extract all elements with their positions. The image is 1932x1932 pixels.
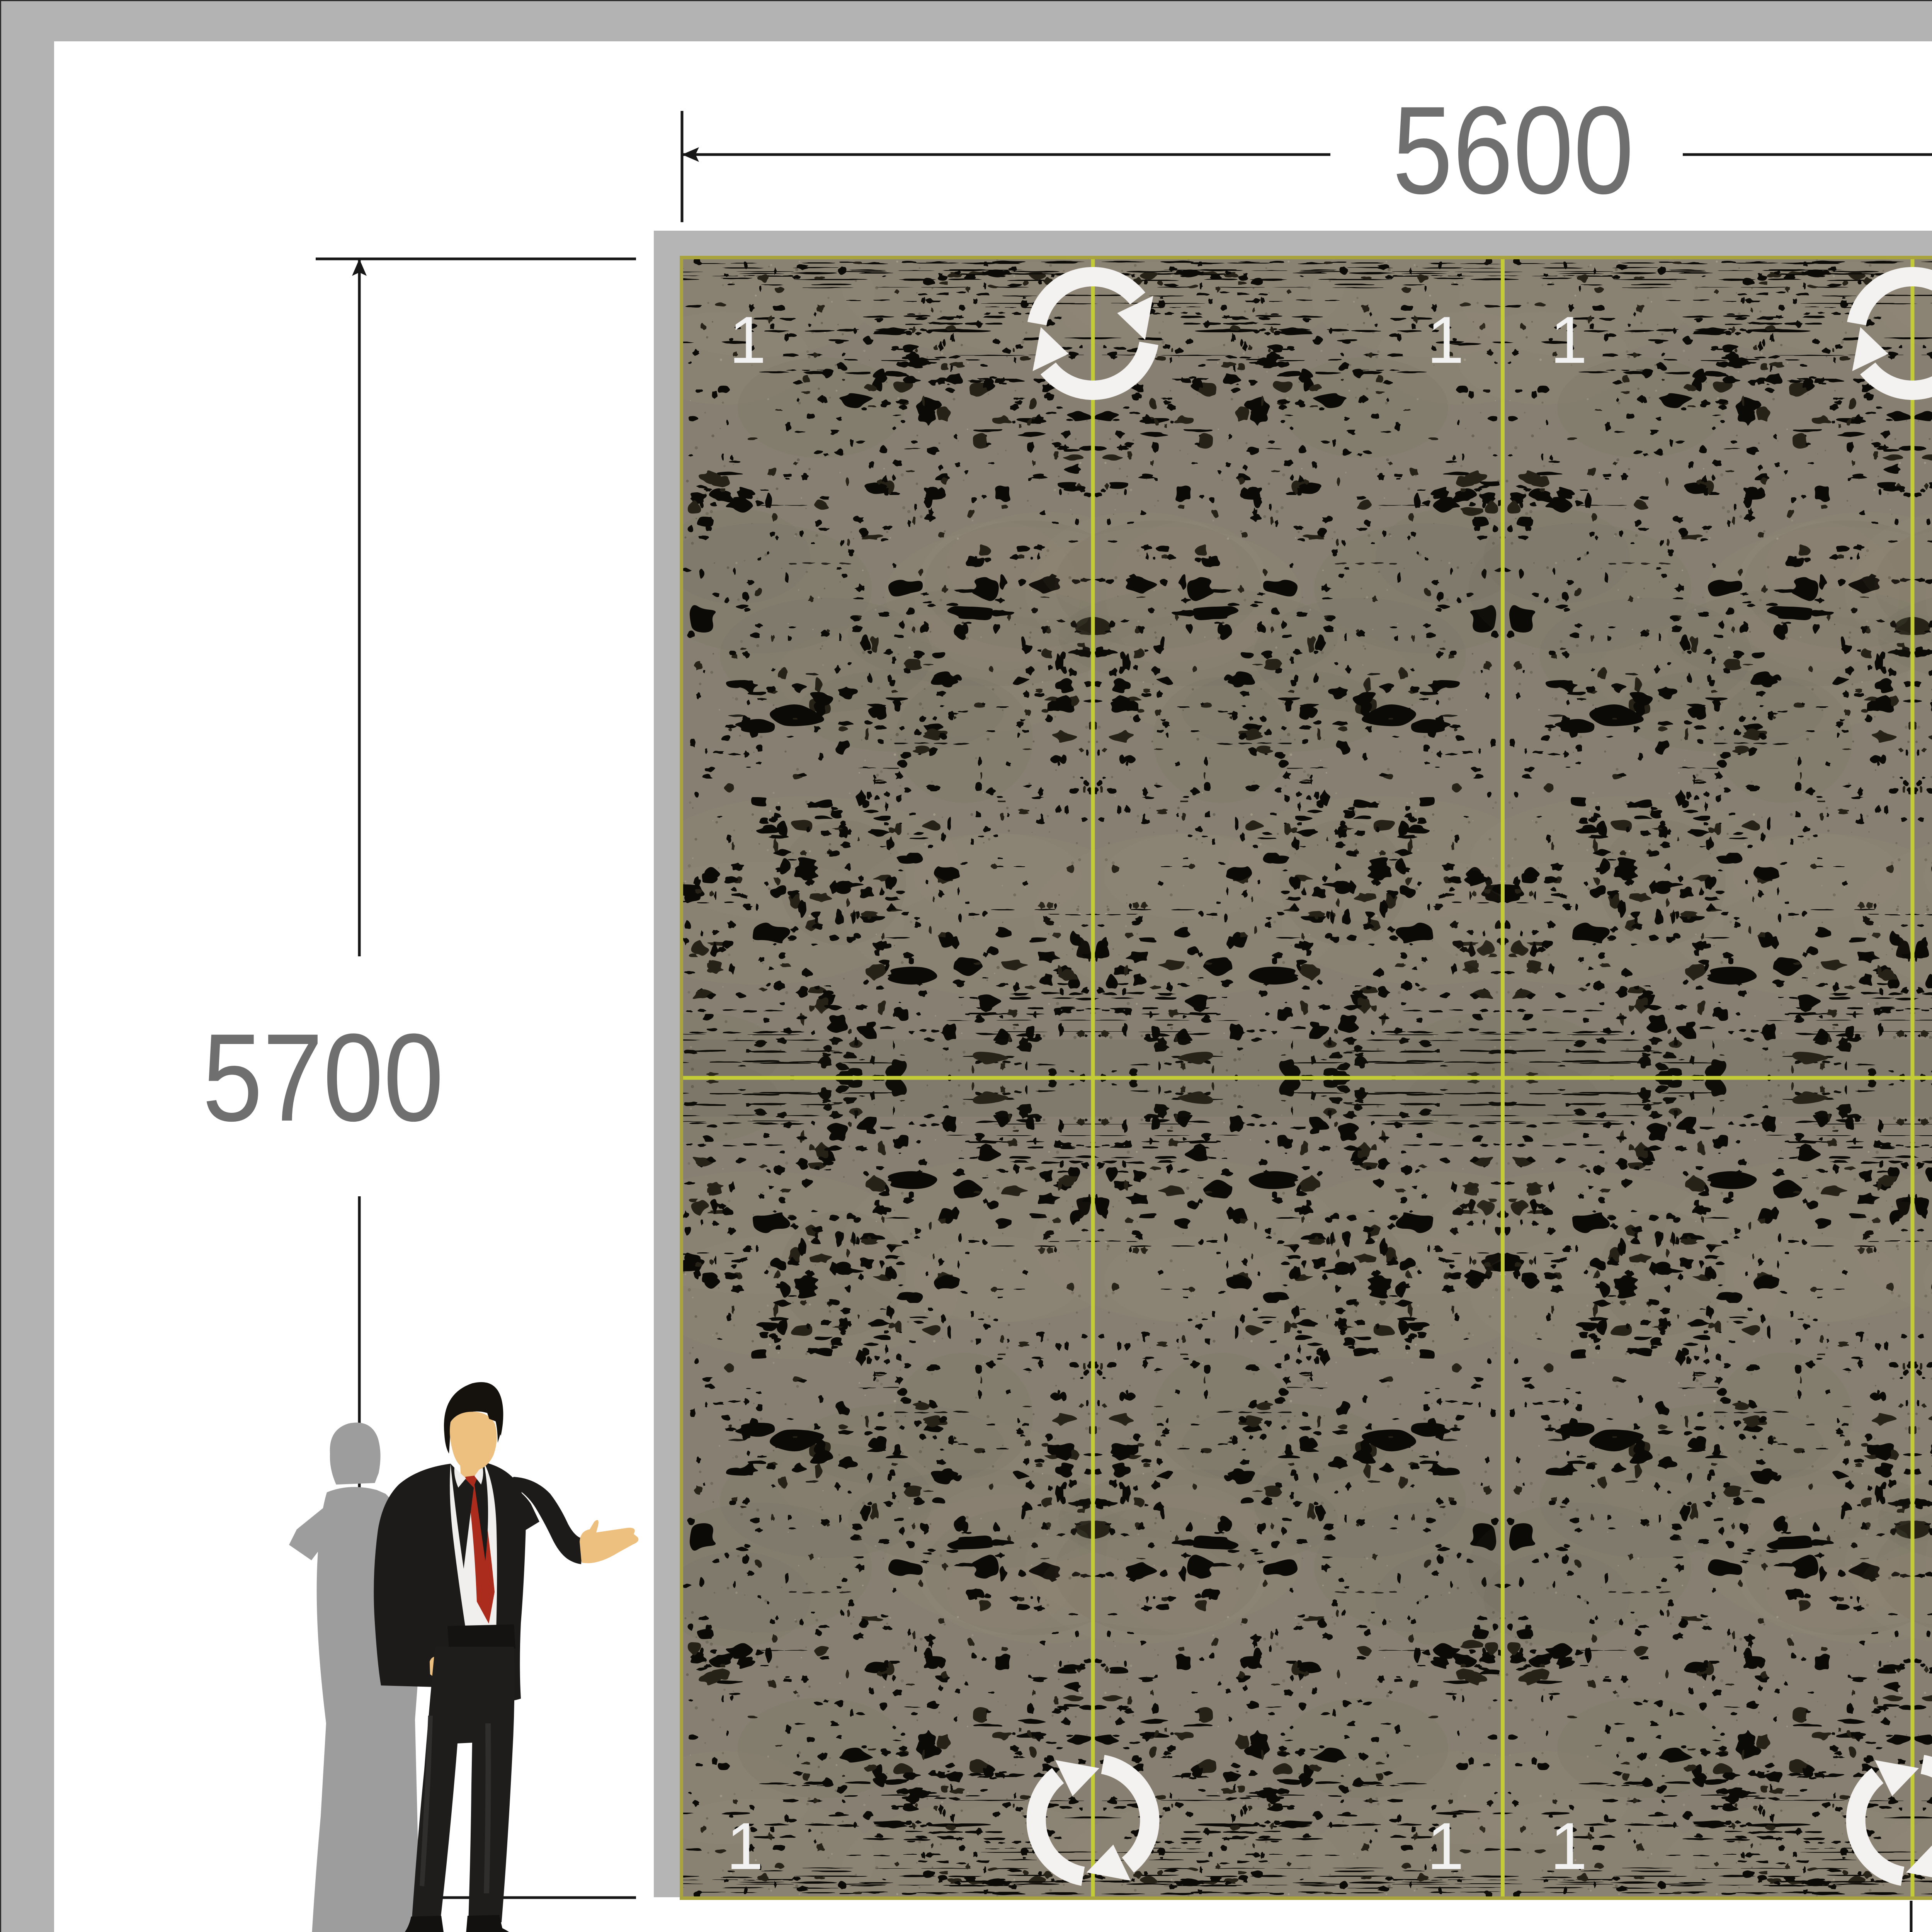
svg-text:1: 1: [729, 303, 766, 377]
svg-text:1: 1: [1427, 1809, 1464, 1883]
svg-text:1: 1: [1427, 303, 1464, 377]
svg-text:1: 1: [726, 1809, 764, 1883]
svg-text:1: 1: [1550, 1809, 1587, 1883]
svg-text:5600: 5600: [1393, 81, 1634, 220]
svg-text:5700: 5700: [202, 1008, 444, 1147]
svg-text:1: 1: [1550, 303, 1587, 377]
